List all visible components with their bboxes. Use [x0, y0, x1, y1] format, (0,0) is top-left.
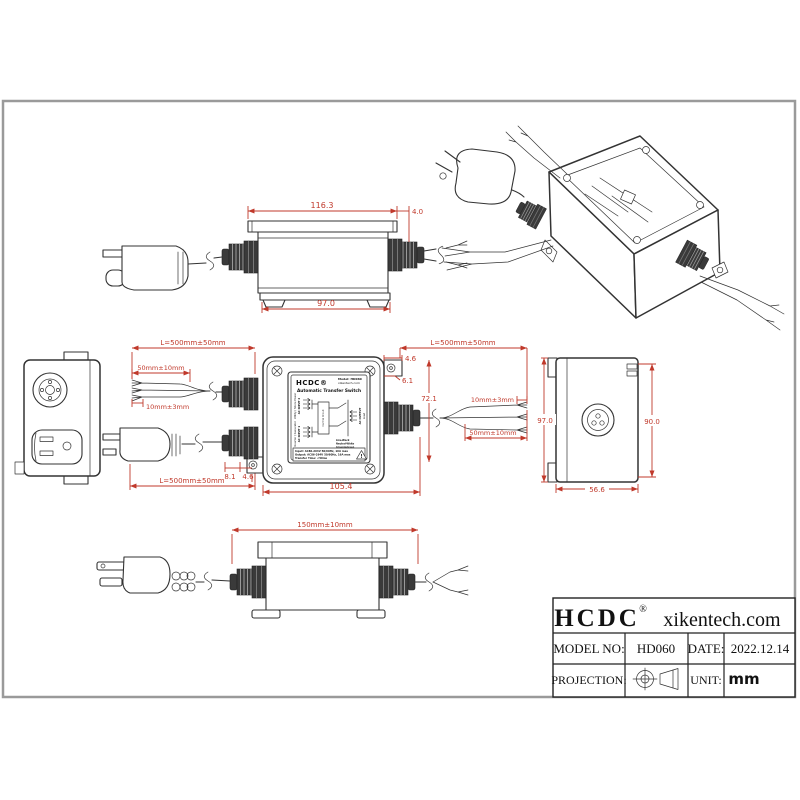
unit-value: mm [728, 670, 759, 688]
drawing-page: 116.3 4.0 97.0 [0, 0, 800, 800]
left-end-view [15, 352, 100, 484]
dim-tin-left: 10mm±3mm [146, 403, 189, 411]
outlet-face [32, 430, 82, 464]
dim-strip-right: 50mm±10mm [469, 429, 516, 437]
label-spec-input: Input: AC86-264V 50/60Hz, 16A max [295, 449, 348, 453]
label-control-circuit: Control Circuit [322, 409, 325, 426]
label-input1-port: AC INPUT 1 [297, 426, 301, 443]
svg-text:!: ! [360, 454, 362, 460]
dim-hole-offset-top: 6.1 [402, 377, 413, 385]
unit-label: UNIT: [690, 673, 721, 687]
label-spec-block: Input: AC86-264V 50/60Hz, 16A max Output… [293, 448, 367, 461]
label-spec-output: Output: AC86-264V 50/60Hz, 16A max [295, 453, 351, 457]
label-product-name: Automatic Transfer Switch [297, 388, 361, 394]
model-label: MODEL NO: [553, 641, 624, 656]
label-website: xikentech.com [338, 381, 360, 385]
dim-depth: 56.6 [589, 486, 605, 494]
label-output-port: AC OUTPUT [358, 407, 362, 424]
label-input2-name: Utility / Shore Power [293, 392, 297, 419]
gland-face [582, 404, 614, 436]
dim-gland-height: 72.1 [421, 395, 437, 403]
dim-tab-width-bottom: 4.6 [242, 473, 254, 481]
label-input1-name: Inverter / Generator [293, 420, 297, 447]
title-block: HCDC ® xikentech.com MODEL NO: HD060 DAT… [551, 598, 795, 697]
foot-right [367, 300, 389, 307]
label-output-load: Load [362, 413, 366, 420]
titleblock-brand: HCDC [554, 605, 640, 632]
foot-left [263, 300, 285, 307]
titleblock-website: xikentech.com [663, 609, 781, 631]
product-label: HCDC® Model: HD060 xikentech.com Automat… [288, 372, 370, 463]
dim-lip-offset: 4.0 [412, 208, 423, 216]
dim-input2-length: L=500mm±50mm [160, 339, 225, 347]
dim-height-body: 90.0 [644, 418, 660, 426]
dim-flange-width: 116.3 [311, 201, 334, 210]
dim-tab-width-top: 4.6 [405, 355, 417, 363]
gland-face [33, 373, 67, 407]
label-brand: HCDC® [296, 379, 327, 387]
label-input2-port: AC INPUT 2 [297, 398, 301, 415]
model-value: HD060 [637, 641, 675, 656]
dim-base-width: 97.0 [317, 299, 335, 308]
technical-drawing: 116.3 4.0 97.0 [0, 0, 800, 800]
dim-height-overall: 97.0 [537, 417, 553, 425]
projection-label: PROJECTION: [551, 673, 626, 687]
dim-tin-right: 10mm±3mm [471, 396, 514, 404]
dim-tab-offset-bottom: 8.1 [224, 473, 235, 481]
label-spec-transfer: Transfer Time: <50ms [295, 456, 328, 460]
dim-plug-cord-length: 150mm±10mm [297, 521, 353, 529]
date-value: 2022.12.14 [731, 641, 790, 656]
date-label: DATE: [688, 641, 725, 656]
dim-input1-length: L=500mm±50mm [159, 477, 224, 485]
dim-strip-left: 50mm±10mm [137, 364, 184, 372]
dim-output-length: L=500mm±50mm [430, 339, 495, 347]
dim-overall-width: 105.4 [330, 482, 353, 491]
registered-mark: ® [639, 604, 647, 615]
